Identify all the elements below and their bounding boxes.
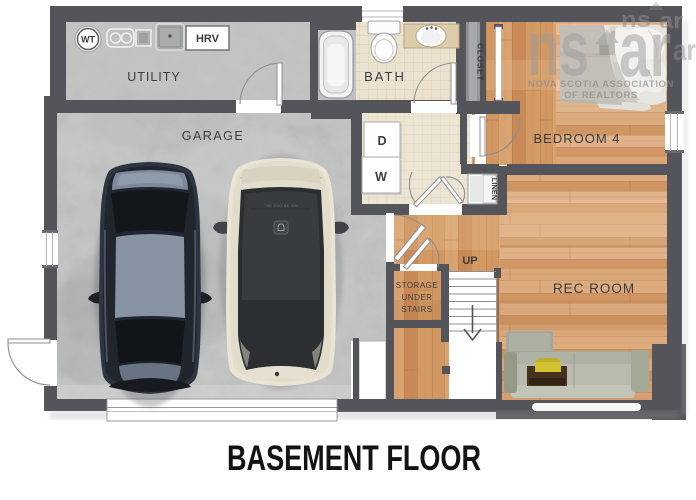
svg-text:REC ROOM: REC ROOM bbox=[553, 281, 635, 296]
svg-text:THE ENGINE INN: THE ENGINE INN bbox=[264, 204, 298, 208]
svg-text:CLOSET: CLOSET bbox=[476, 43, 486, 81]
svg-text:ns: ns bbox=[621, 7, 651, 32]
svg-text:BASEMENT FLOOR: BASEMENT FLOOR bbox=[227, 439, 481, 478]
svg-text:OF REALTORS: OF REALTORS bbox=[564, 90, 638, 101]
svg-text:NOVA SCOTIA ASSOCIATION: NOVA SCOTIA ASSOCIATION bbox=[528, 79, 674, 90]
svg-text:STORAGE: STORAGE bbox=[396, 281, 438, 290]
svg-text:STAIRS: STAIRS bbox=[401, 305, 432, 314]
svg-text:UP: UP bbox=[462, 255, 477, 267]
svg-text:ar: ar bbox=[673, 34, 696, 67]
svg-text:GARAGE: GARAGE bbox=[182, 129, 245, 143]
svg-text:BATH: BATH bbox=[364, 69, 406, 84]
svg-text:LINEN: LINEN bbox=[490, 178, 497, 201]
svg-text:WT: WT bbox=[81, 35, 95, 45]
svg-text:UTILITY: UTILITY bbox=[127, 70, 181, 84]
svg-text:HRV: HRV bbox=[196, 33, 220, 45]
svg-text:W: W bbox=[375, 170, 387, 184]
svg-text:BEDROOM 4: BEDROOM 4 bbox=[533, 131, 620, 146]
svg-text:UNDER: UNDER bbox=[402, 293, 433, 302]
svg-text:D: D bbox=[377, 134, 386, 148]
svg-text:ar: ar bbox=[659, 8, 684, 33]
